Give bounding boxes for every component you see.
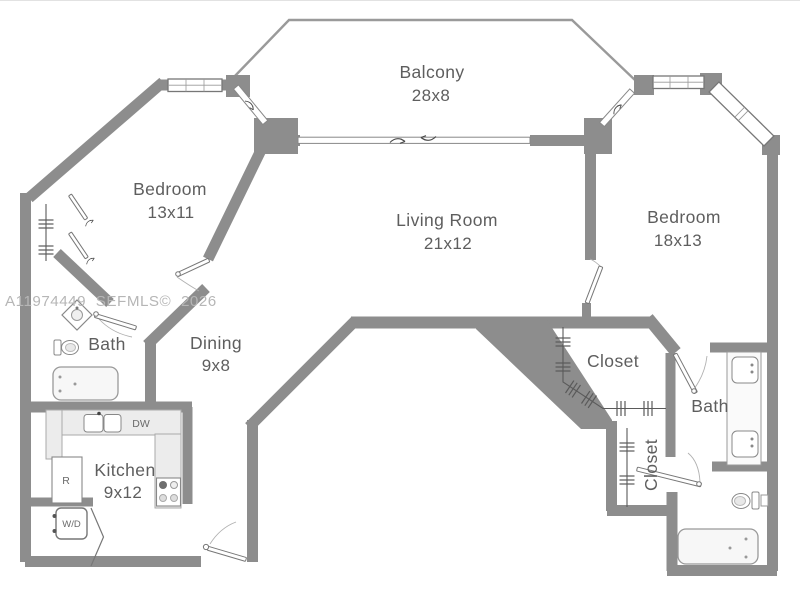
living-room-dims: 21x12 xyxy=(424,234,472,253)
kitchen-label: Kitchen xyxy=(94,460,155,480)
balcony-dims: 28x8 xyxy=(412,86,450,105)
bathtub-right xyxy=(678,529,758,564)
floor-plan-image: Balcony 28x8 Bedroom 13x11 Living Room 2… xyxy=(0,0,800,601)
door-hallway-bedroom-right xyxy=(585,259,603,304)
closet-walkin-label: Closet xyxy=(587,351,639,371)
bedroom-right-dims: 18x13 xyxy=(654,231,702,250)
dining-label: Dining xyxy=(190,333,242,353)
toilet-right xyxy=(732,492,768,509)
window-bedroom-right-bay xyxy=(709,82,774,146)
washer-dryer-label: W/D xyxy=(62,519,81,530)
slider-bedroom-left-balcony xyxy=(234,85,268,125)
slider-living-balcony xyxy=(298,136,530,144)
door-entry xyxy=(203,522,246,561)
slider-bedroom-right-balcony xyxy=(600,89,635,127)
bedroom-left-dims: 13x11 xyxy=(147,203,194,222)
watermark: A11974449 SEFMLS© 2026 xyxy=(5,293,217,310)
living-room-label: Living Room xyxy=(396,210,498,230)
bedroom-right-label: Bedroom xyxy=(647,207,721,227)
floor-plan: Balcony 28x8 Bedroom 13x11 Living Room 2… xyxy=(0,1,800,601)
vanity-sink-1 xyxy=(732,357,758,383)
vanity-sink-2 xyxy=(732,431,758,457)
kitchen-counter-left xyxy=(46,410,62,459)
door-bedroom-left xyxy=(176,258,210,291)
dining-dims: 9x8 xyxy=(202,356,231,375)
closet-hall-label: Closet xyxy=(641,439,661,491)
refrigerator-label: R xyxy=(62,475,70,487)
kitchen-dims: 9x12 xyxy=(104,483,142,502)
bath-right-label: Bath xyxy=(691,396,729,416)
door-bedroom-closet-bifold xyxy=(69,194,95,265)
bathtub-left xyxy=(53,367,118,400)
bath-left-label: Bath xyxy=(88,334,126,354)
bedroom-left-label: Bedroom xyxy=(133,179,207,199)
window-bedroom-left xyxy=(168,79,222,92)
door-closet-walkin xyxy=(673,353,707,394)
dishwasher-label: DW xyxy=(132,418,150,430)
toilet-left xyxy=(54,340,79,355)
balcony-label: Balcony xyxy=(399,62,464,82)
stove xyxy=(157,478,181,506)
window-bedroom-right-top xyxy=(653,76,704,89)
